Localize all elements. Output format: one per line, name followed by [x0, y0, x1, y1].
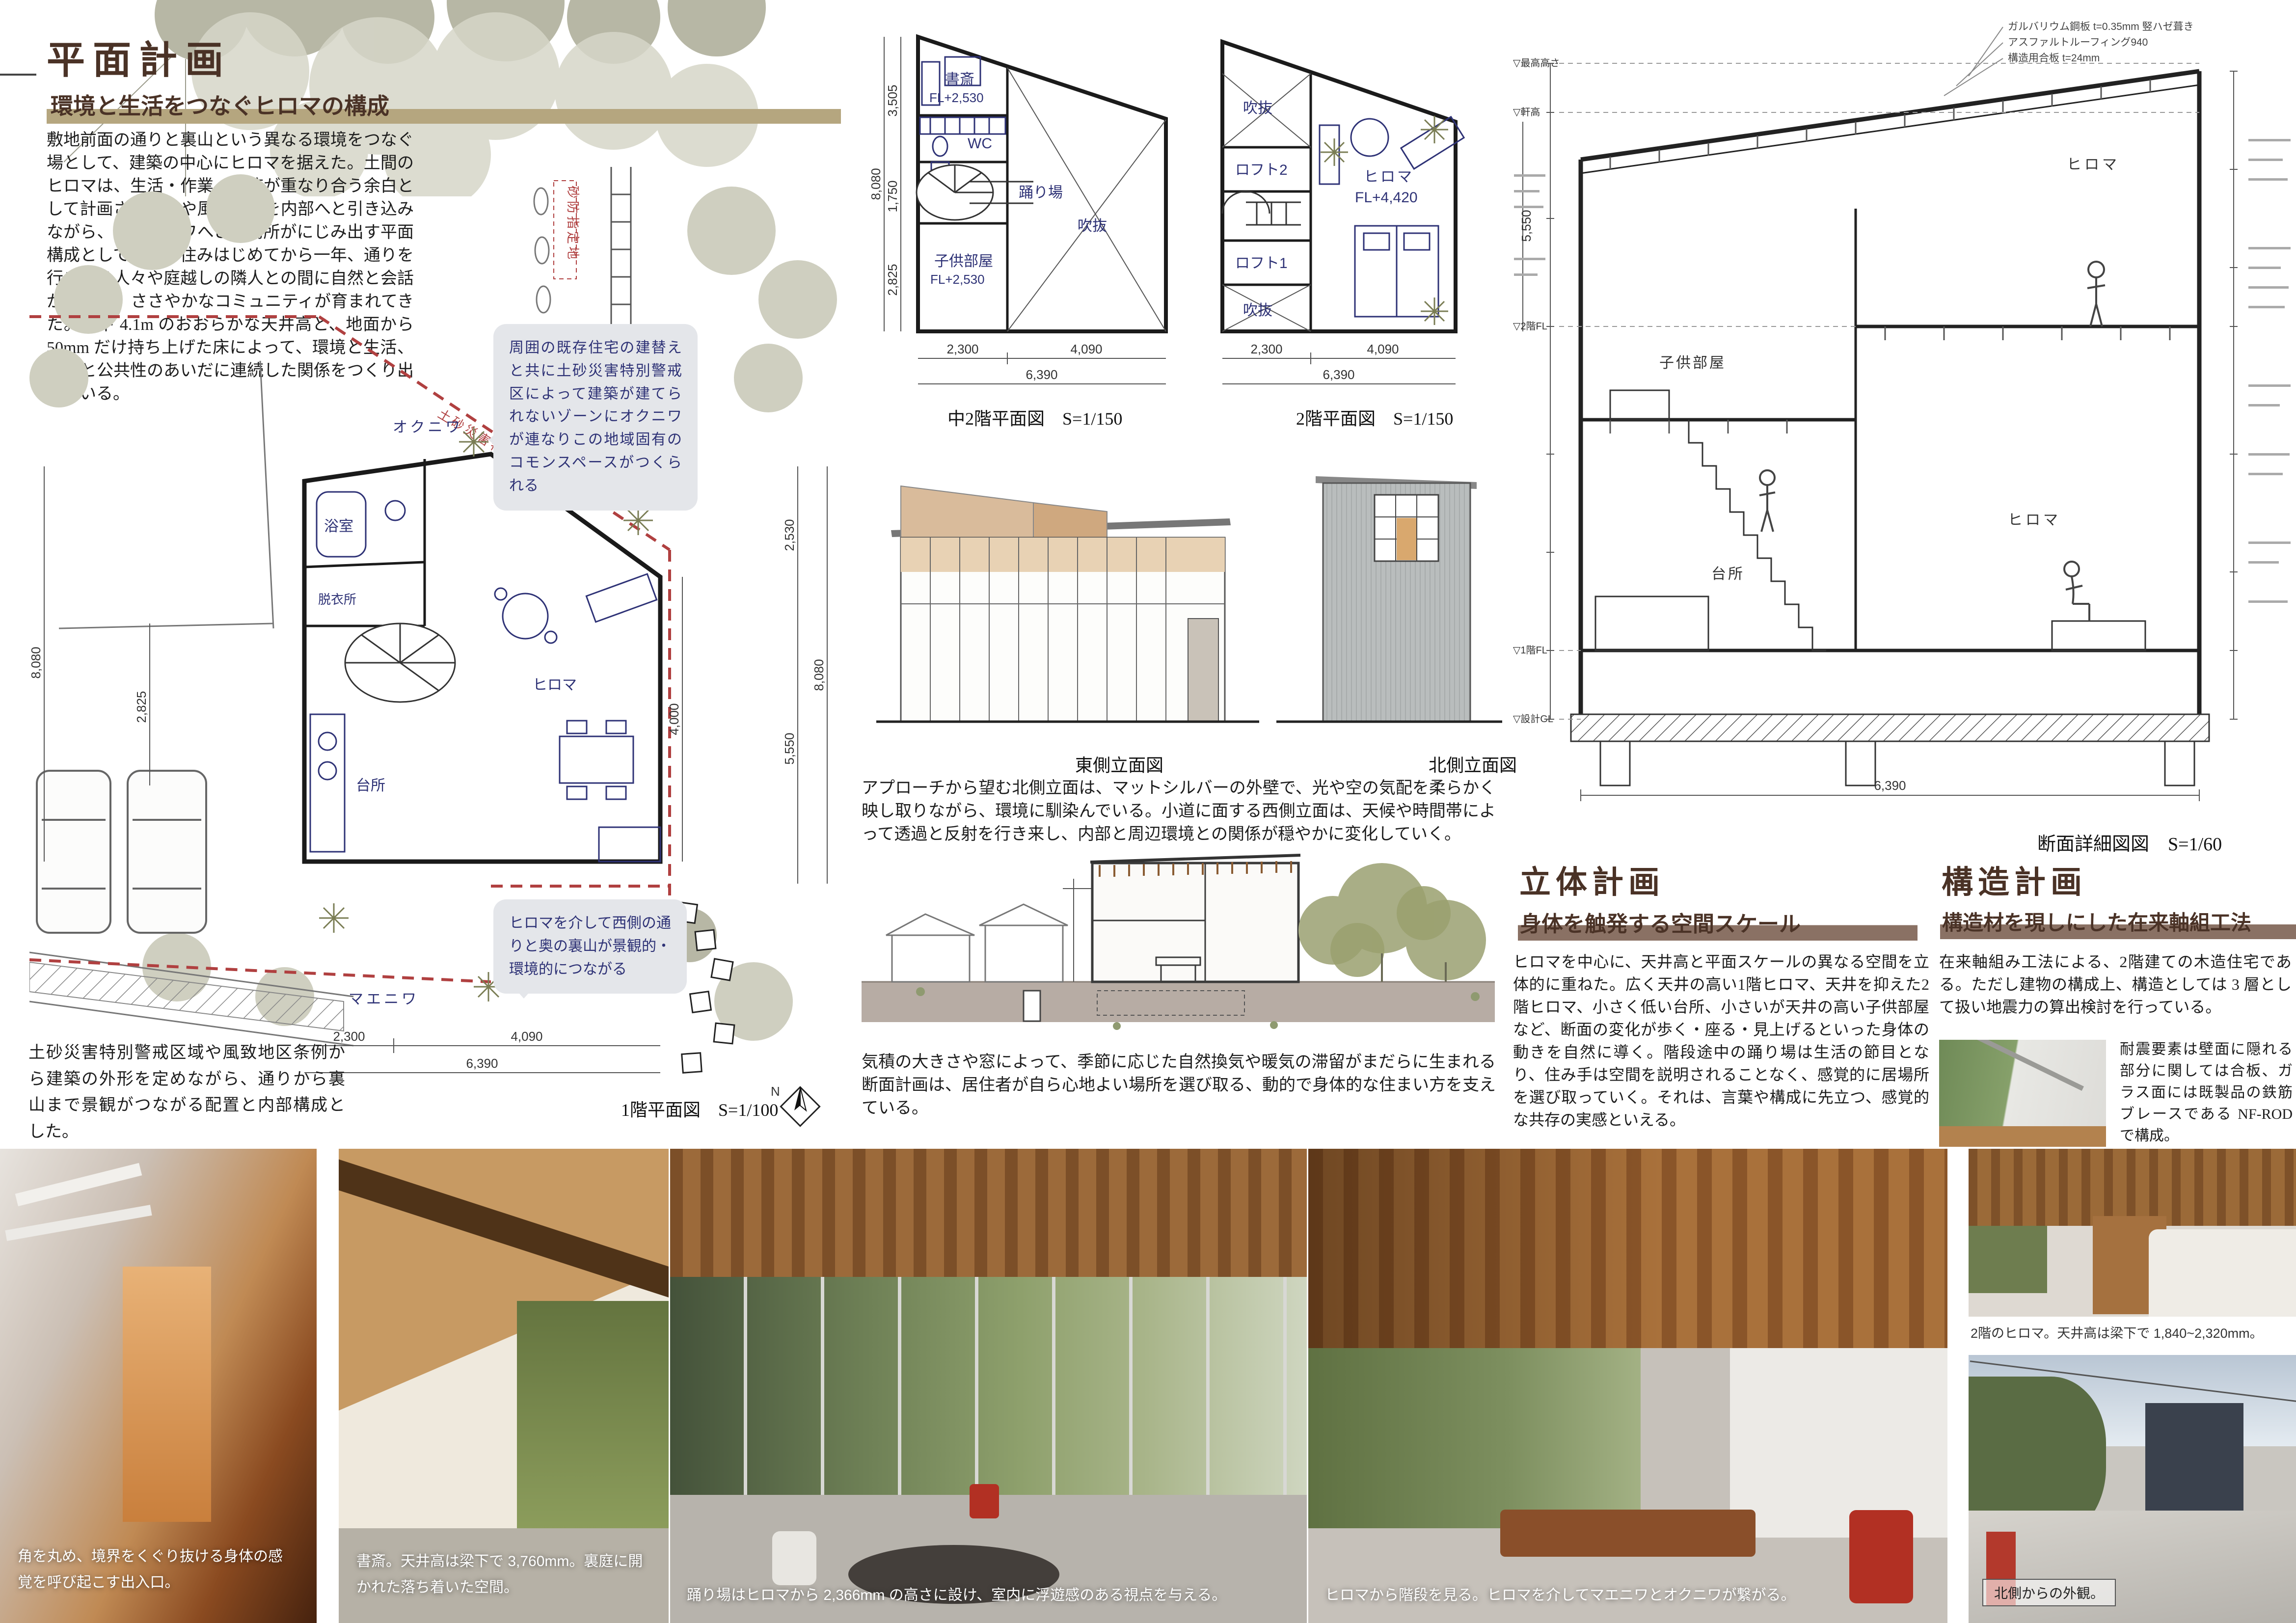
- glazing-trees: [1308, 1348, 1641, 1528]
- mullions: [670, 1277, 1307, 1495]
- plan-b-dim-btotal: 6,390: [1323, 367, 1354, 382]
- photo-hiroma-stair: ヒロマから階段を見る。ヒロマを介してマエニワとオクニワが繋がる。: [1308, 1149, 1947, 1623]
- red-chair-small: [970, 1484, 999, 1518]
- plan-b-hiroma: ヒロマ: [1364, 169, 1414, 185]
- photo-landing-view: 踊り場はヒロマから 2,366mm の高さに設け、室内に浮遊感のある視点を与える…: [670, 1149, 1307, 1623]
- photo-caption-4: ヒロマから階段を見る。ヒロマを介してマエニワとオクニワが繋がる。: [1325, 1583, 1890, 1609]
- steel-rod: [1939, 1059, 2091, 1064]
- solid-plan-body: ヒロマを中心に、天井高と平面スケールの異なる空間を立体的に重ねた。広く天井の高い…: [1513, 950, 1929, 1131]
- presentation-board: 平面計画 環境と生活をつなぐヒロマの構成 敷地前面の通りと裏山という異なる環境を…: [0, 0, 2296, 1623]
- north-letter: N: [771, 1084, 780, 1099]
- plan-a-landing: 踊り場: [1019, 185, 1063, 201]
- ann-roof-1: ガルバリウム鋼板 t=0.35mm 竪ハゼ葺き: [2008, 21, 2194, 32]
- plan-b-dim-b1: 2,300: [1250, 342, 1282, 356]
- window-green: [1969, 1226, 2047, 1293]
- structure-plan-subtitle-row: 構造材を現しにした在来軸組工法: [1940, 906, 2296, 939]
- garden-window: [517, 1301, 669, 1547]
- section-detail-label: 断面詳細図図 S=1/60: [2037, 829, 2222, 856]
- level-1f-fl: ▽1階FL: [1513, 645, 1547, 656]
- plan-a-study-fl: FL+2,530: [929, 90, 984, 105]
- photo-caption-1: 角を丸め、境界をくぐり抜ける身体の感覚を呼び起こす出入口。: [18, 1544, 293, 1596]
- section-paragraph: 気積の大きさや窓によって、季節に応じた自然換気や暖気の滞留がまだらに生まれる断面…: [862, 1051, 1496, 1120]
- photo-caption-3: 踊り場はヒロマから 2,366mm の高さに設け、室内に浮遊感のある視点を与える…: [687, 1583, 1276, 1609]
- detail-room-kitchen: 台所: [1711, 566, 1745, 582]
- steel-rod-diagonal: [1939, 1040, 2084, 1091]
- plan-a-dim-v2: 1,750: [885, 180, 900, 212]
- plan-b-loft2: ロフト2: [1235, 162, 1288, 178]
- plan-mid2f-label: 中2階平面図 S=1/150: [947, 405, 1122, 430]
- plan-a-child: 子供部屋: [934, 253, 993, 270]
- sabo-area-label: 砂防指定地: [554, 181, 580, 279]
- callout-hazard-commons: 周囲の既存住宅の建替えと共に土砂災害特別警戒区によって建築が建てられないゾーンに…: [493, 324, 698, 511]
- detail-room-hiroma-2f: ヒロマ: [2067, 157, 2120, 173]
- house-1f-plan: [304, 454, 660, 862]
- parked-cars: [37, 771, 206, 933]
- solid-plan-title: 立体計画: [1519, 857, 1665, 902]
- plan-a-child-fl: FL+2,530: [930, 272, 985, 287]
- figure-girl-2f: [2087, 262, 2105, 326]
- plan-a-wc: WC: [968, 135, 992, 152]
- title-rule: [0, 74, 36, 76]
- plan-a-dim-b2: 4,090: [1070, 342, 1102, 356]
- dim-site-right-c: 5,550: [782, 732, 797, 764]
- plan-a-dim-v3: 2,825: [885, 264, 900, 296]
- detail-room-child: 子供部屋: [1659, 355, 1726, 371]
- site-note-text: 土砂災害特別警戒区域や風致地区条例から建築の外形を定めながら、通りから裏山まで景…: [28, 1040, 345, 1145]
- garden-label-okuniwa: オクニワ: [393, 419, 463, 435]
- room-label-bath: 浴室: [324, 518, 353, 535]
- plan-a-dim-vtotal: 8,080: [871, 168, 883, 200]
- dim-site-bottom-c: 6,390: [466, 1056, 498, 1071]
- micro-annotation-placeholders: [1514, 139, 2291, 603]
- section-perspective-drawing: [862, 835, 1495, 1037]
- photo-caption-2: 書斎。天井高は梁下で 3,760mm。裏庭に開かれた落ち着いた空間。: [356, 1549, 646, 1600]
- plan-a-dim-btotal: 6,390: [1026, 367, 1057, 382]
- plan-b-loft1: ロフト1: [1235, 255, 1288, 271]
- photo-exterior-north: 北側からの外観。: [1969, 1355, 2296, 1623]
- site-plan-drawing: 土砂災害特別警戒区域 砂防指定地: [29, 167, 864, 1129]
- detail-room-hiroma-1f: ヒロマ: [2008, 512, 2061, 528]
- north-elevation-drawing: [1276, 457, 1502, 731]
- stair-white-shape: [5, 1205, 152, 1241]
- level-2f-fl: ▽2階FL: [1513, 321, 1547, 332]
- garden-label-maeniwa: マエニワ: [349, 991, 419, 1007]
- dim-site-left-a: 8,080: [29, 647, 43, 678]
- plan-a-dim-b1: 2,300: [946, 342, 978, 356]
- ann-roof-3: 構造用合板 t=24mm: [2008, 53, 2100, 64]
- solid-plan-subtitle-row: 身体を触発する空間スケール: [1518, 906, 1918, 941]
- dim-site-left-b: 2,825: [134, 691, 149, 723]
- east-elevation-drawing: [876, 457, 1259, 731]
- plan-b-dim-b2: 4,090: [1367, 342, 1399, 356]
- page-title-plan: 平面計画: [47, 29, 231, 84]
- stair-white-shape: [15, 1163, 142, 1206]
- room-label-kitchen-site: 台所: [356, 778, 385, 794]
- ann-roof-2: アスファルトルーフィング940: [2008, 37, 2148, 48]
- plan-subtitle: 環境と生活をつなぐヒロマの構成: [47, 88, 841, 124]
- white-wall: [1730, 1348, 1947, 1538]
- level-eave: ▽軒高: [1513, 107, 1540, 118]
- solid-plan-subtitle: 身体を触発する空間スケール: [1518, 906, 1918, 941]
- structure-plan-subtitle: 構造材を現しにした在来軸組工法: [1940, 906, 2296, 939]
- dim-site-bottom-b: 4,090: [511, 1029, 542, 1044]
- room-label-hiroma-site: ヒロマ: [533, 677, 577, 693]
- plan-1f-label: 1階平面図 S=1/100: [621, 1096, 778, 1121]
- plan-b-void-bottom: 吹抜: [1243, 302, 1272, 319]
- structure-plan-body-2: 耐震要素は壁面に隠れる部分に関しては合板、ガラス面には既製品の鉄筋ブレースである…: [2120, 1039, 2293, 1147]
- figure-person-stair: [1759, 470, 1775, 532]
- section-detail-drawing: ガルバリウム鋼板 t=0.35mm 竪ハゼ葺き アスファルトルーフィング940 …: [1512, 12, 2296, 842]
- detail-dim-bottom: 6,390: [1874, 778, 1906, 793]
- dim-site-right-d: 4,000: [667, 703, 681, 735]
- dim-site-right-b: 8,080: [811, 659, 826, 691]
- svg-text:砂防指定地: 砂防指定地: [566, 186, 580, 262]
- joist-ceiling: [670, 1149, 1307, 1277]
- room-label-dressing: 脱衣所: [318, 592, 356, 607]
- structure-plan-body-1: 在来軸組み工法による、2階建ての木造住宅である。ただし建物の構成上、構造としては…: [1939, 950, 2292, 1018]
- plan-b-hiroma-fl: FL+4,420: [1355, 189, 1418, 206]
- east-elevation-label: 東側立面図: [1001, 751, 1237, 777]
- photo-caption-6: 北側からの外観。: [1982, 1579, 2116, 1606]
- wood-table: [1500, 1510, 1756, 1557]
- structure-plan-title: 構造計画: [1942, 857, 2087, 902]
- photo-entrance: 角を丸め、境界をくぐり抜ける身体の感覚を呼び起こす出入口。: [0, 1149, 317, 1623]
- dim-site-right-a: 2,530: [782, 519, 797, 551]
- callout-hiroma-view: ヒロマを介して西側の通りと奥の裏山が景観的・環境的につながる: [493, 899, 687, 994]
- photo-study: 書斎。天井高は梁下で 3,760mm。裏庭に開かれた落ち着いた空間。: [339, 1149, 669, 1623]
- plan-subtitle-row: 環境と生活をつなぐヒロマの構成: [47, 88, 847, 124]
- slat-ceiling: [1969, 1149, 2296, 1226]
- doorway-glow: [123, 1267, 211, 1522]
- plan-a-void: 吹抜: [1078, 218, 1107, 234]
- window-sill-wood: [1939, 1126, 2106, 1147]
- plan-a-study: 書斎: [945, 72, 974, 88]
- figure-person-reading: [2064, 562, 2089, 621]
- north-compass: N: [767, 1078, 826, 1137]
- white-chair: [772, 1531, 816, 1585]
- plan-2f-label: 2階平面図 S=1/150: [1296, 405, 1453, 430]
- brace-photo: [1939, 1040, 2106, 1147]
- plan-b-void-top: 吹抜: [1243, 100, 1272, 116]
- bed-white: [2149, 1229, 2296, 1317]
- joist-shadow: [1308, 1149, 1947, 1348]
- plan-a-dim-v1: 3,505: [885, 84, 900, 116]
- plan-mid2f-drawing: 書斎 FL+2,530 WC 踊り場 吹抜 子供部屋 FL+2,530 8,08…: [871, 15, 1210, 412]
- photo-caption-5: 2階のヒロマ。天井高は梁下で 1,840~2,320mm。: [1971, 1323, 2295, 1342]
- photo-2f-hiroma: [1969, 1149, 2296, 1317]
- plan-2f-drawing: 吹抜 ロフト2 ロフト1 吹抜 ヒロマ FL+4,420 5,550 2,300…: [1208, 15, 1546, 412]
